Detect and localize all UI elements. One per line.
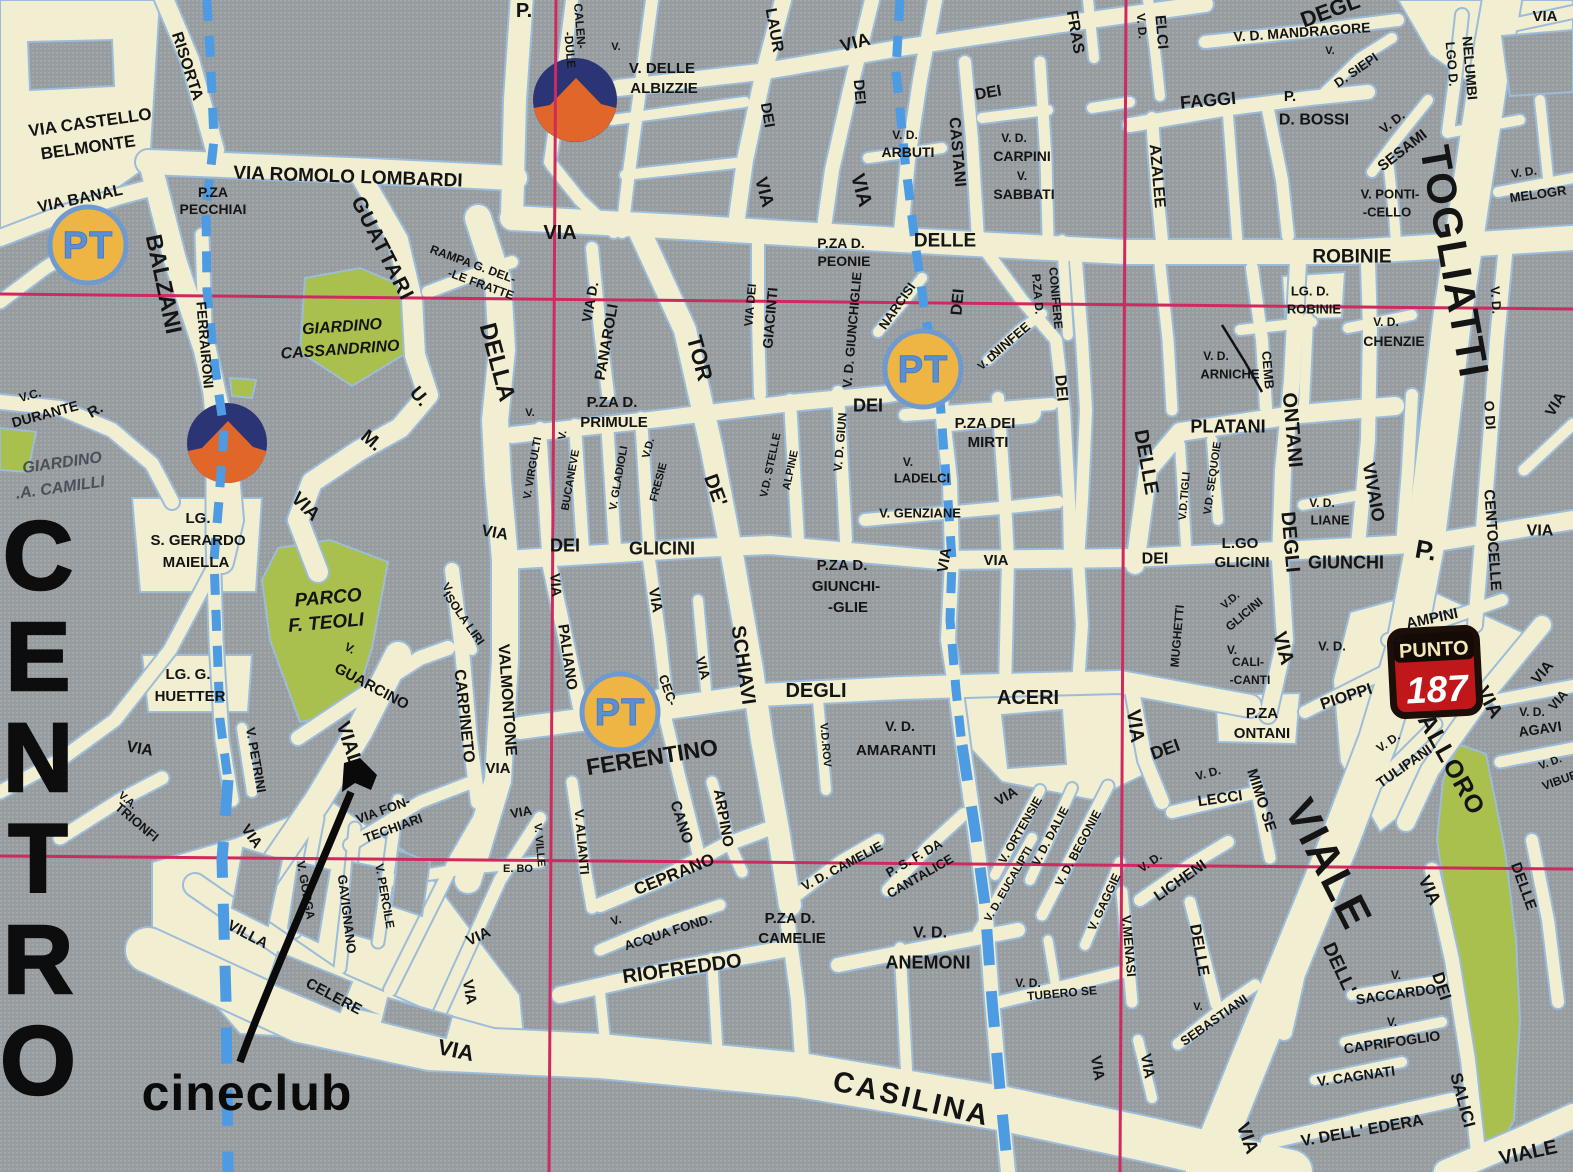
svg-text:PUNTO: PUNTO <box>1399 637 1470 663</box>
svg-text:PECCHIAI: PECCHIAI <box>180 201 247 217</box>
svg-text:ARBUTI: ARBUTI <box>882 144 935 160</box>
svg-text:C: C <box>3 501 73 610</box>
svg-text:D. BOSSI: D. BOSSI <box>1279 112 1349 129</box>
svg-text:V. D.: V. D. <box>1488 286 1505 315</box>
svg-text:V. D.: V. D. <box>913 925 947 942</box>
svg-text:PEONIE: PEONIE <box>818 253 871 269</box>
svg-text:V. DELLE: V. DELLE <box>629 60 695 77</box>
svg-text:V. D.: V. D. <box>1134 13 1150 40</box>
svg-text:187: 187 <box>1405 667 1471 711</box>
svg-text:CHENZIE: CHENZIE <box>1363 333 1424 349</box>
svg-text:V.: V. <box>611 41 620 53</box>
svg-text:P.ZA: P.ZA <box>1246 705 1278 722</box>
svg-text:VIA: VIA <box>1532 8 1557 25</box>
svg-text:LADELCI: LADELCI <box>894 471 950 486</box>
svg-text:E. BO: E. BO <box>503 863 533 875</box>
svg-text:S. GERARDO: S. GERARDO <box>150 532 245 549</box>
svg-text:DEGLI: DEGLI <box>785 680 846 702</box>
svg-text:ONTANI: ONTANI <box>1234 725 1290 742</box>
svg-text:V. D.: V. D. <box>1373 315 1399 329</box>
svg-text:VIA: VIA <box>1122 708 1148 744</box>
svg-text:V. D.: V. D. <box>1309 496 1335 510</box>
svg-text:V.: V. <box>1391 968 1401 982</box>
svg-text:ROBINIE: ROBINIE <box>1312 247 1391 268</box>
svg-text:P.ZA: P.ZA <box>198 184 228 200</box>
svg-text:ANEMONI: ANEMONI <box>886 952 971 972</box>
svg-text:ALBIZZIE: ALBIZZIE <box>630 80 698 97</box>
svg-text:CARPINI: CARPINI <box>993 148 1051 164</box>
svg-text:V. D.: V. D. <box>1318 639 1346 654</box>
svg-text:E: E <box>6 602 71 711</box>
svg-text:DEI: DEI <box>850 79 869 105</box>
svg-text:LG. G.: LG. G. <box>166 666 211 683</box>
svg-text:VIA: VIA <box>983 552 1008 569</box>
svg-text:DEI: DEI <box>853 395 883 415</box>
svg-text:LG. D.: LG. D. <box>1291 284 1329 299</box>
svg-text:GLICINI: GLICINI <box>629 538 695 558</box>
svg-text:V. D.: V. D. <box>1203 349 1229 363</box>
svg-text:V.: V. <box>1017 169 1027 183</box>
svg-text:ACERI: ACERI <box>997 687 1059 709</box>
svg-text:P.ZA D.: P.ZA D. <box>817 557 868 574</box>
svg-text:GIUNCHI: GIUNCHI <box>1308 552 1384 572</box>
svg-text:ARNICHE: ARNICHE <box>1200 367 1260 382</box>
svg-text:PT: PT <box>63 225 114 267</box>
svg-text:ELCI: ELCI <box>1151 14 1171 50</box>
svg-text:-CANTI: -CANTI <box>1230 673 1271 687</box>
svg-text:SABBATI: SABBATI <box>993 186 1054 202</box>
svg-text:O: O <box>0 1006 75 1115</box>
svg-text:P.ZA D.: P.ZA D. <box>765 910 816 927</box>
svg-text:-GLIE: -GLIE <box>828 599 868 616</box>
svg-text:V. PONTI-: V. PONTI- <box>1361 187 1420 202</box>
svg-text:L.GO: L.GO <box>1222 535 1259 552</box>
svg-text:N: N <box>3 703 73 812</box>
svg-text:DEI: DEI <box>1051 374 1070 402</box>
svg-text:O DI: O DI <box>1481 400 1499 430</box>
svg-text:V.: V. <box>525 407 534 419</box>
svg-text:AMARANTI: AMARANTI <box>856 742 936 759</box>
svg-text:V. D.: V. D. <box>1519 705 1545 719</box>
svg-text:V.: V. <box>1387 1015 1397 1029</box>
svg-text:VIA: VIA <box>485 760 510 777</box>
svg-text:DEI: DEI <box>948 288 967 316</box>
svg-text:P.: P. <box>516 0 532 22</box>
svg-text:MAIELLA: MAIELLA <box>163 554 230 571</box>
svg-text:-CELLO: -CELLO <box>1363 205 1411 220</box>
svg-text:GLICINI: GLICINI <box>1215 554 1270 571</box>
svg-text:VIA: VIA <box>543 222 576 244</box>
svg-text:R: R <box>3 905 73 1014</box>
svg-text:CAMELIE: CAMELIE <box>758 930 826 947</box>
svg-text:V. D.: V. D. <box>1001 131 1027 145</box>
svg-text:V. D.: V. D. <box>892 128 918 142</box>
svg-text:DEI: DEI <box>550 535 580 555</box>
svg-text:PT: PT <box>595 692 646 734</box>
svg-text:ROBINIE: ROBINIE <box>1287 302 1342 317</box>
svg-text:V.: V. <box>1325 45 1334 57</box>
svg-text:P.ZA DEI: P.ZA DEI <box>955 415 1016 432</box>
svg-text:PLATANI: PLATANI <box>1190 416 1265 436</box>
svg-text:P.ZA D.: P.ZA D. <box>817 235 864 251</box>
svg-text:LG.: LG. <box>186 510 211 527</box>
svg-text:CALI-: CALI- <box>1232 655 1264 669</box>
svg-text:GIUNCHI-: GIUNCHI- <box>812 578 880 595</box>
svg-text:LIANE: LIANE <box>1311 513 1350 528</box>
svg-text:cineclub: cineclub <box>142 1065 353 1121</box>
svg-text:VIA: VIA <box>547 573 565 598</box>
svg-text:V. D.: V. D. <box>885 718 915 734</box>
svg-text:PRIMULE: PRIMULE <box>580 414 648 431</box>
svg-text:PT: PT <box>898 349 949 391</box>
svg-text:HUETTER: HUETTER <box>155 688 226 705</box>
svg-text:T: T <box>8 804 67 913</box>
svg-text:V.: V. <box>1193 1001 1202 1013</box>
svg-text:MIRTI: MIRTI <box>968 434 1009 451</box>
svg-text:DELLE: DELLE <box>914 231 976 252</box>
svg-text:V. GENZIANE: V. GENZIANE <box>879 506 961 521</box>
svg-text:V.: V. <box>903 455 913 469</box>
svg-text:VIA: VIA <box>1527 523 1554 540</box>
svg-text:P.: P. <box>1284 88 1296 105</box>
svg-text:P.ZA D.: P.ZA D. <box>587 394 638 411</box>
svg-text:DEI: DEI <box>1142 551 1169 568</box>
